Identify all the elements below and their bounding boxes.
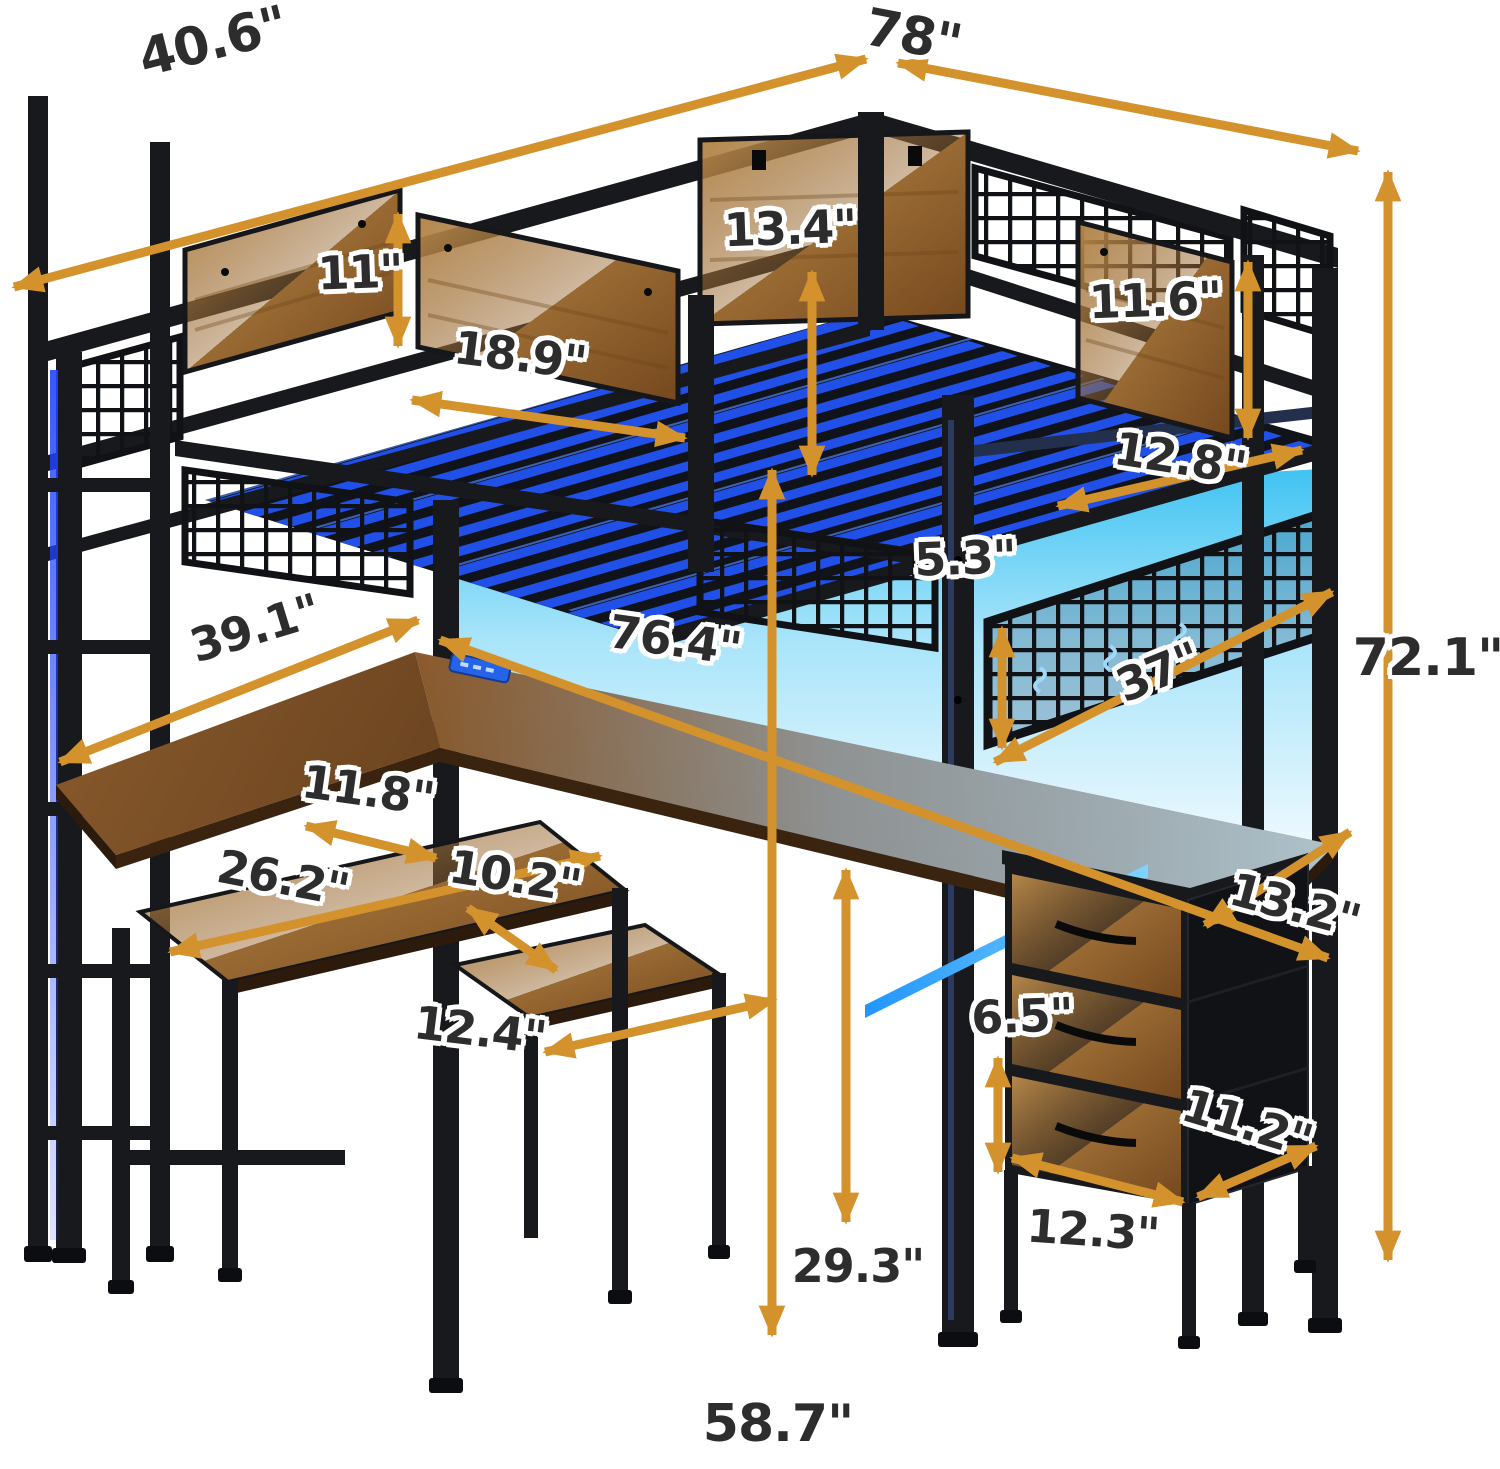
dim-label-side-panel-height: 11.6" — [1088, 271, 1222, 330]
dim-label-drawer-width: 12.3" — [1025, 1198, 1161, 1261]
ladder — [24, 96, 174, 1262]
dimension-diagram: 40.6" 78" 13.4" 11" 11.6" 18.9" 12.8" 5.… — [0, 0, 1500, 1469]
post-feet — [52, 1248, 1342, 1393]
dim-label-desk-height: 29.3" — [792, 1239, 924, 1293]
dim-label-hook-rail-height: 5.3" — [913, 529, 1016, 587]
dim-label-back-panel-height: 13.4" — [723, 199, 857, 258]
wood-panel-11-6 — [1078, 222, 1232, 438]
dim-label-overall-height: 72.1" — [1353, 628, 1500, 688]
dim-label-floor-clearance: 58.7" — [703, 1394, 853, 1454]
arrow-11-8 — [306, 826, 436, 858]
dim-label-front-panel-height: 11" — [317, 244, 404, 301]
dim-label-drawer-height: 6.5" — [970, 987, 1073, 1045]
